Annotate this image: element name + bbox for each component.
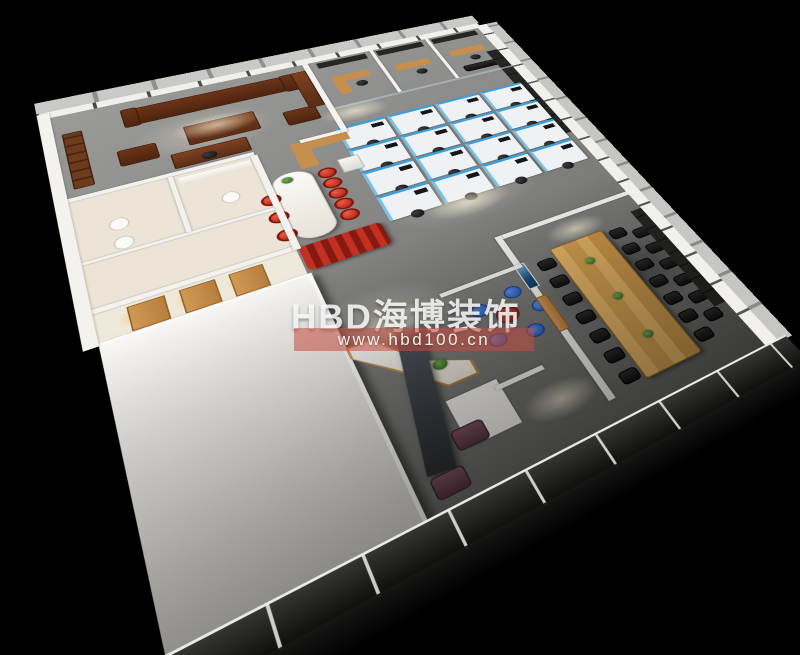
- render-canvas: HBD海博装饰 www.hbd100.cn: [0, 0, 800, 655]
- watermark-url: www.hbd100.cn: [338, 330, 491, 349]
- watermark-url-band: www.hbd100.cn: [294, 328, 534, 351]
